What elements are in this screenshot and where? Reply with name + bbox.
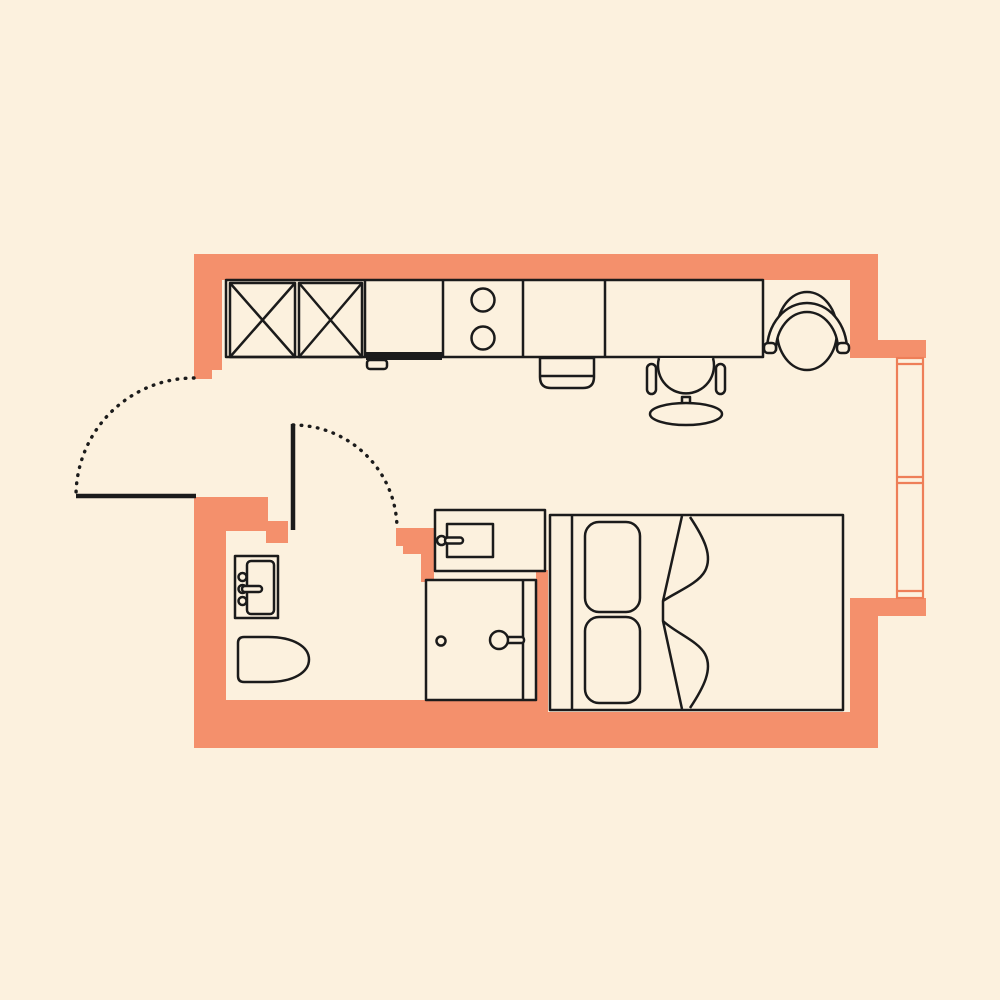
bathroom-sink: [235, 556, 278, 618]
wall-top: [194, 254, 878, 280]
armchair-arm-cap-right: [837, 343, 849, 353]
chair-seat: [658, 358, 714, 393]
chair-armrest-left: [647, 364, 656, 394]
toilet-outline: [238, 637, 309, 682]
tap-spout: [445, 538, 463, 544]
desk-chair: [647, 358, 725, 425]
wall-window-bottom-stub: [850, 598, 926, 616]
window-bay: [897, 358, 923, 598]
shower-drain: [437, 637, 446, 646]
floor-plan-drawing: [0, 0, 1000, 1000]
wall-right-upper: [850, 278, 878, 342]
interior-door-swing-arc: [293, 425, 397, 529]
wall-interior-door-left-jamb: [266, 521, 288, 543]
wall-shower-bed-divider: [536, 570, 548, 712]
armchair-arm-cap-left: [764, 343, 776, 353]
armchair: [764, 292, 849, 370]
bed: [550, 515, 843, 710]
sink-knob: [239, 573, 247, 581]
wall-shower-connector: [421, 544, 434, 582]
entrance-door: [76, 378, 196, 496]
counter-stool: [540, 358, 594, 388]
chair-armrest-right: [716, 364, 725, 394]
stool-outline: [540, 358, 594, 388]
floor-plan-canvas: [0, 0, 1000, 1000]
pillow-top: [585, 522, 640, 612]
wall-left-upper: [194, 254, 222, 370]
oven-handle: [367, 360, 387, 369]
wall-left-jamb-step: [194, 370, 212, 379]
washbasin-unit: [435, 510, 545, 571]
shower-handle-knob: [490, 631, 508, 649]
toilet: [238, 637, 309, 682]
wall-left-lower: [194, 524, 226, 748]
chair-backrest: [650, 403, 722, 425]
sink-knob: [239, 597, 247, 605]
interior-door: [293, 424, 397, 530]
wall-window-top-stub: [850, 340, 926, 358]
pillow-bottom: [585, 617, 640, 703]
entrance-door-swing-arc: [76, 378, 194, 496]
shower: [426, 580, 536, 700]
sink-tap: [242, 586, 262, 592]
wall-interior-door-right-jamb: [396, 528, 434, 546]
